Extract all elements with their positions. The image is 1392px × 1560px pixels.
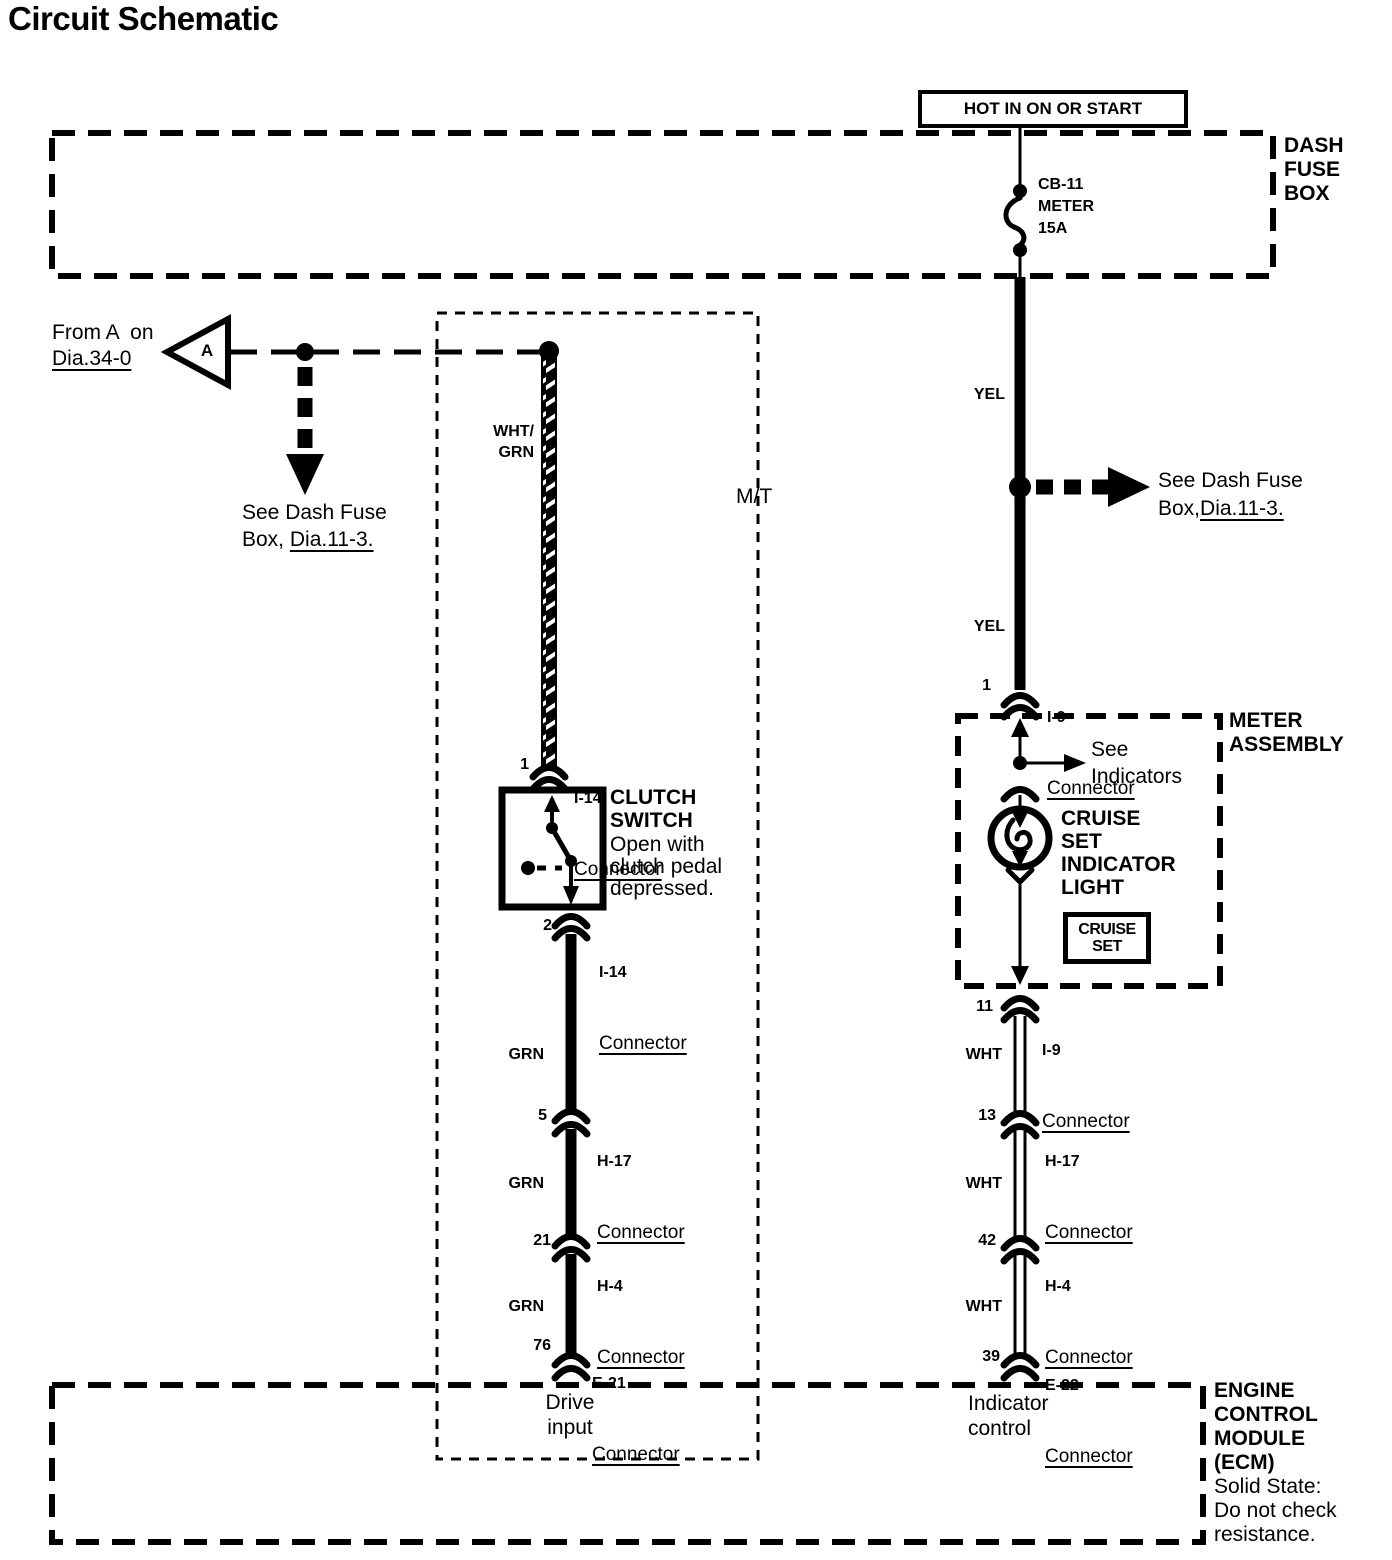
grn-label-3: GRN xyxy=(486,1297,544,1317)
fuse-label: CB-11 METER 15A xyxy=(1038,174,1094,240)
see-ref-right-prefix: Box, xyxy=(1158,497,1200,520)
wht-label-2: WHT xyxy=(944,1174,1002,1194)
yel-upper-label: YEL xyxy=(953,385,1005,405)
see-ref-right-line1: See Dash Fuse xyxy=(1158,468,1303,493)
connector-label-i14-bottom: I-14 Connector xyxy=(599,913,687,1105)
cruise-set-badge-text: CRUISE SET xyxy=(1078,921,1135,955)
connector-pin-i9-bottom: 11 xyxy=(963,997,993,1017)
schematic-canvas xyxy=(0,0,1392,1560)
connector-id: H-17 xyxy=(597,1152,685,1171)
power-source-label: HOT IN ON OR START xyxy=(964,99,1142,119)
connector-pin-i14-top: 1 xyxy=(503,755,529,775)
see-ref-left-link[interactable]: Dia.11-3. xyxy=(290,528,374,551)
meter-assembly-label: METER ASSEMBLY xyxy=(1229,709,1344,757)
connector-id: I-9 xyxy=(1042,1041,1130,1060)
yel-lower-label: YEL xyxy=(953,617,1005,637)
h4-right-connector-symbol xyxy=(1004,1239,1036,1262)
see-indicators-label: See Indicators xyxy=(1091,736,1182,790)
connector-id: H-4 xyxy=(1045,1277,1133,1296)
from-a-dashed-wire xyxy=(230,341,559,361)
connector-pin-i14-bottom: 2 xyxy=(526,916,552,936)
connector-pin-i9-top: 1 xyxy=(973,676,991,696)
connector-link[interactable]: Connector xyxy=(599,1033,687,1055)
ecm-name: ENGINE CONTROL MODULE (ECM) xyxy=(1214,1379,1318,1475)
dash-fuse-box-label: DASH FUSE BOX xyxy=(1284,134,1344,206)
connector-link[interactable]: Connector xyxy=(592,1444,680,1466)
see-ref-right-link[interactable]: Dia.11-3. xyxy=(1200,497,1284,520)
see-dash-fuse-left-arrow xyxy=(286,367,324,495)
connector-pin-h17-right: 13 xyxy=(966,1106,996,1126)
mt-region-label: M/T xyxy=(736,484,772,509)
circuit-schematic-page: Circuit Schematic HOT IN ON OR START DAS… xyxy=(0,0,1392,1560)
ecm-footer-indicator-control: Indicator control xyxy=(968,1391,1049,1441)
grn-label-1: GRN xyxy=(486,1045,544,1065)
connector-pin-h4-left: 21 xyxy=(519,1231,551,1251)
power-source-box: HOT IN ON OR START xyxy=(918,90,1188,128)
connector-link[interactable]: Connector xyxy=(1045,1446,1133,1468)
ecm-note: Solid State: Do not check resistance. xyxy=(1214,1475,1337,1547)
see-ref-right-line2: Box,Dia.11-3. xyxy=(1158,496,1284,521)
ref-triangle-a-letter: A xyxy=(193,341,221,361)
fuse-cb11-symbol xyxy=(1006,128,1027,279)
from-ref-text: From A on xyxy=(52,320,154,345)
i9-bottom-connector-symbol xyxy=(1004,999,1036,1021)
clutch-switch-name: CLUTCH SWITCH xyxy=(610,786,696,832)
connector-id: I-9 xyxy=(1047,708,1135,727)
cruise-set-badge: CRUISE SET xyxy=(1063,912,1151,964)
cruise-indicator-label: CRUISE SET INDICATOR LIGHT xyxy=(1061,807,1176,899)
from-ref-link[interactable]: Dia.34-0 xyxy=(52,346,131,371)
wht-label-3: WHT xyxy=(944,1297,1002,1317)
e22-connector-symbol xyxy=(1004,1356,1036,1379)
connector-pin-e21: 76 xyxy=(519,1336,551,1356)
wht-grn-wire-label: WHT/ GRN xyxy=(450,421,534,463)
yel-wire xyxy=(1009,277,1031,690)
clutch-switch-note: Open with clutch pedal depressed. xyxy=(610,834,722,900)
i14-top-connector-symbol xyxy=(533,768,565,790)
mt-footer-drive-input: Drive input xyxy=(460,1390,680,1440)
connector-id: H-4 xyxy=(597,1277,685,1296)
wht-label-1: WHT xyxy=(944,1045,1002,1065)
connector-id: I-14 xyxy=(599,963,687,982)
connector-pin-h4-right: 42 xyxy=(966,1231,996,1251)
e21-connector-symbol xyxy=(555,1356,587,1379)
i9-top-connector-symbol xyxy=(1004,696,1036,718)
wht-wire xyxy=(1015,1016,1025,1354)
cruise-set-indicator-lamp-symbol xyxy=(991,809,1049,985)
wht-grn-wire xyxy=(542,358,556,768)
connector-id: E-22 xyxy=(1045,1376,1133,1395)
grn-label-2: GRN xyxy=(486,1174,544,1194)
connector-id: H-17 xyxy=(1045,1152,1133,1171)
connector-pin-h17-left: 5 xyxy=(521,1106,547,1126)
page-title: Circuit Schematic xyxy=(8,2,278,37)
connector-label-e22: E-22 Connector xyxy=(1045,1326,1133,1518)
see-dash-fuse-right-arrow xyxy=(1036,467,1150,507)
h17-right-connector-symbol xyxy=(1004,1114,1036,1137)
see-ref-left-line1: See Dash Fuse xyxy=(242,500,387,525)
connector-pin-e22: 39 xyxy=(970,1347,1000,1367)
see-ref-left-line2: Box, Dia.11-3. xyxy=(242,527,374,552)
see-ref-left-prefix: Box, xyxy=(242,528,290,551)
